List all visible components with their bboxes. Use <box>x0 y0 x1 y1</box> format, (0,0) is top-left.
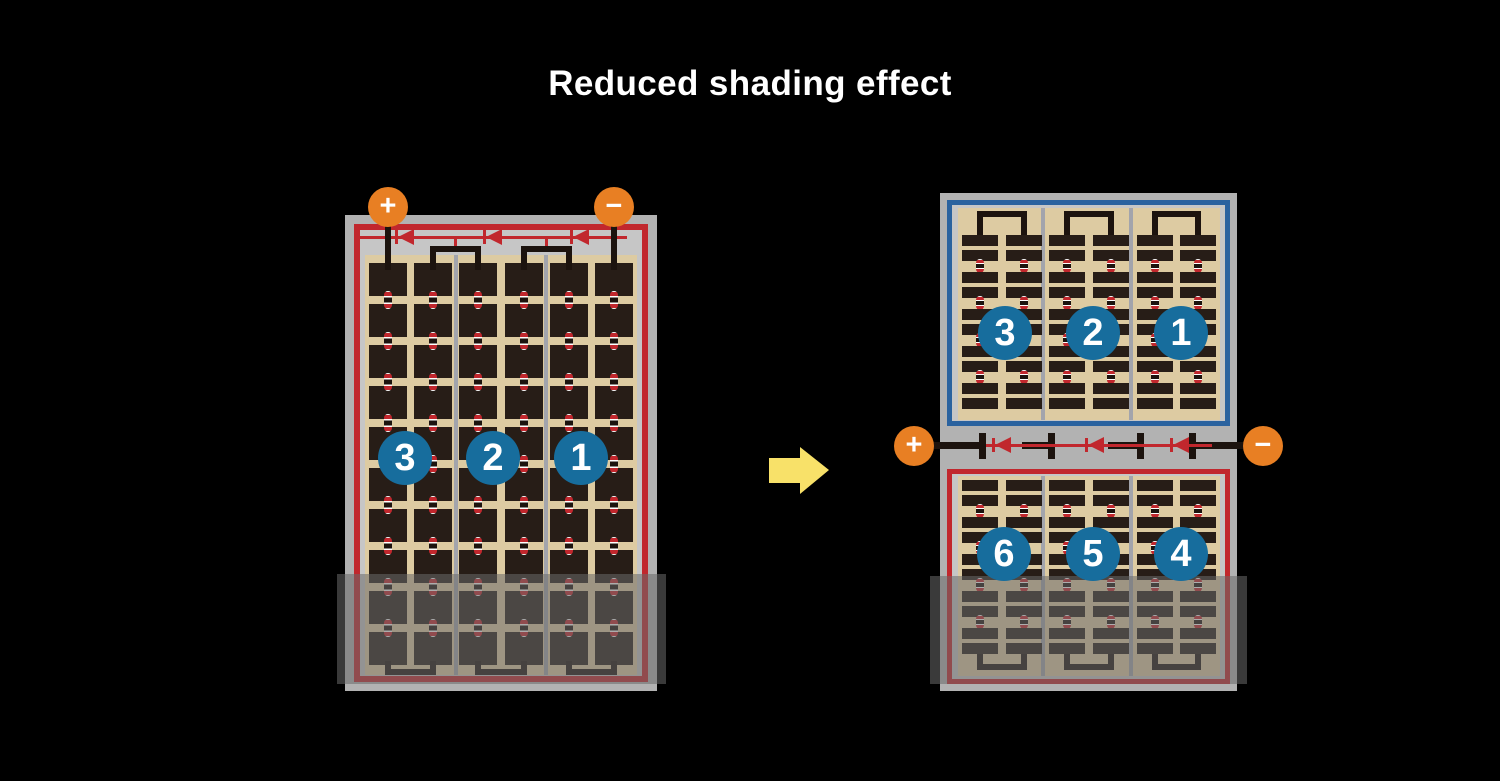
solar-half-cell <box>962 517 998 528</box>
string-number: 6 <box>977 527 1031 581</box>
junction-diode-bus <box>0 0 1500 781</box>
cell-connector <box>976 504 984 518</box>
diagram-canvas: Reduced shading effect 3 2 1 3 2 1 6 5 4… <box>0 0 1500 781</box>
solar-half-cell <box>1093 480 1129 491</box>
shading-overlay-left <box>337 574 666 684</box>
solar-half-cell <box>1137 517 1173 528</box>
cell-connector <box>1107 504 1115 518</box>
solar-half-cell <box>1049 480 1085 491</box>
solar-half-cell <box>962 480 998 491</box>
negative-terminal: − <box>594 187 634 227</box>
solar-half-cell <box>1137 480 1173 491</box>
solar-half-cell <box>1049 517 1085 528</box>
cell-connector <box>1020 504 1028 518</box>
solar-half-cell <box>1180 517 1216 528</box>
cell-connector <box>1151 504 1159 518</box>
string-number: 1 <box>1154 306 1208 360</box>
string-number: 5 <box>1066 527 1120 581</box>
shading-overlay-right <box>930 576 1247 684</box>
solar-half-cell <box>1006 517 1042 528</box>
cell-connector <box>1194 504 1202 518</box>
string-number: 4 <box>1154 527 1208 581</box>
positive-terminal: + <box>368 187 408 227</box>
diode-icon <box>1088 437 1104 453</box>
string-number: 2 <box>466 431 520 485</box>
diode-icon <box>1173 437 1189 453</box>
transform-arrow-icon <box>769 458 800 483</box>
transform-arrow-icon <box>800 447 829 494</box>
string-number: 3 <box>978 306 1032 360</box>
solar-half-cell <box>1180 480 1216 491</box>
string-number: 1 <box>554 431 608 485</box>
solar-half-cell <box>1093 517 1129 528</box>
string-number: 2 <box>1066 306 1120 360</box>
positive-terminal: + <box>894 426 934 466</box>
diode-icon <box>995 437 1011 453</box>
negative-terminal: − <box>1243 426 1283 466</box>
junction-node <box>979 433 986 459</box>
solar-half-cell <box>1006 480 1042 491</box>
terminal-lead <box>933 442 984 449</box>
cell-connector <box>1063 504 1071 518</box>
string-number: 3 <box>378 431 432 485</box>
